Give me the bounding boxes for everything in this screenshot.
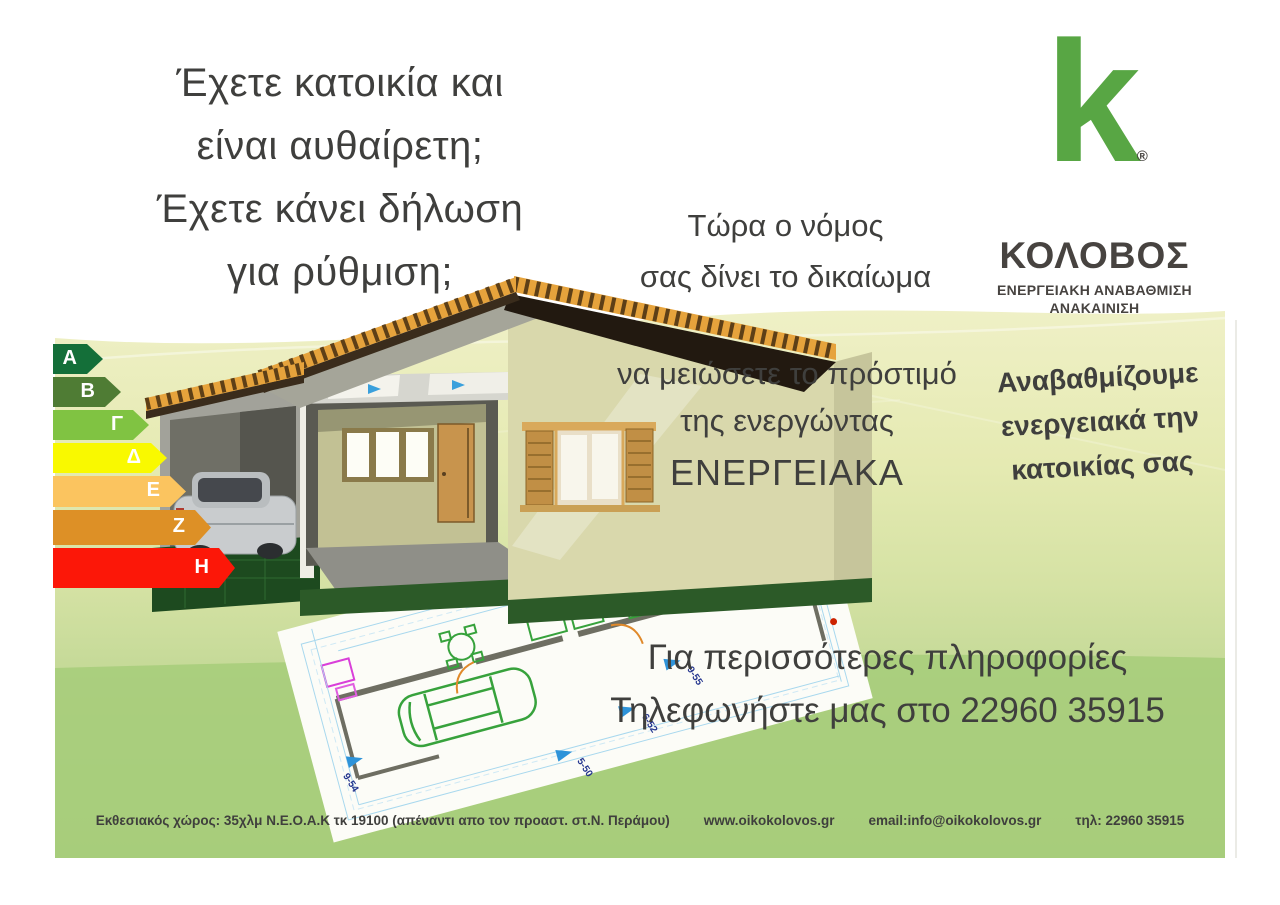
headline-line: για ρύθμιση; xyxy=(115,241,565,304)
footer-phone: τηλ: 22960 35915 xyxy=(1075,813,1184,828)
porch-window xyxy=(342,428,434,482)
company-name: ΚΟΛΟΒΟΣ xyxy=(963,235,1226,277)
energy-rating-arrow-Α: Α xyxy=(53,344,103,374)
energy-rating-letter: Η xyxy=(195,556,209,579)
company-tagline-line1: ΕΝΕΡΓΕΙΑΚΗ ΑΝΑΒΑΘΜΙΣΗ xyxy=(963,281,1226,299)
energy-rating-arrow-Γ: Γ xyxy=(53,410,149,440)
registered-trademark-icon: ® xyxy=(1137,148,1144,165)
energy-rating-arrow-Δ: Δ xyxy=(53,443,167,473)
energy-rating-arrow-Β: Β xyxy=(53,377,121,407)
benefit-line: της ενεργώντας xyxy=(606,397,968,444)
benefit-text: να μειώσετε το πρόστιμό της ενεργώντας Ε… xyxy=(606,350,968,496)
contact-info-text: Για περισσότερες πληροφορίες Τηλεφωνήστε… xyxy=(595,631,1180,737)
contact-line: Τηλεφωνήστε μας στο 22960 35915 xyxy=(595,684,1180,737)
upgrade-pitch-text: Αναβαθμίζουμε ενεργειακά την κατοικίας σ… xyxy=(969,349,1232,494)
energy-rating-letter: Δ xyxy=(127,446,141,469)
contact-line: Για περισσότερες πληροφορίες xyxy=(595,631,1180,684)
footer-website: www.oikokolovos.gr xyxy=(704,813,835,828)
headline-line: Έχετε κάνει δήλωση xyxy=(115,178,565,241)
footer-address: Εκθεσιακός χώρος: 35χλμ Ν.Ε.Ο.Α.Κ τκ 191… xyxy=(96,813,670,828)
law-intro-text: Τώρα ο νόμος σας δίνει το δικαίωμα xyxy=(628,200,943,302)
footer-bar: Εκθεσιακός χώρος: 35χλμ Ν.Ε.Ο.Α.Κ τκ 191… xyxy=(55,813,1225,828)
headline-text: Έχετε κατοικία και είναι αυθαίρετη; Έχετ… xyxy=(115,52,565,304)
logo-k-mark: k® xyxy=(963,28,1226,231)
headline-line: Έχετε κατοικία και xyxy=(115,52,565,115)
energy-rating-arrow-Ε: Ε xyxy=(53,476,186,507)
benefit-line: να μειώσετε το πρόστιμό xyxy=(606,350,968,397)
energy-rating-letter: Ε xyxy=(147,479,160,502)
headline-line: είναι αυθαίρετη; xyxy=(115,115,565,178)
footer-email: email:info@oikokolovos.gr xyxy=(868,813,1041,828)
energy-rating-arrow-Ζ: Ζ xyxy=(53,510,211,545)
law-intro-line: σας δίνει το δικαίωμα xyxy=(628,251,943,302)
energy-rating-letter: Γ xyxy=(111,413,123,436)
company-tagline: ΕΝΕΡΓΕΙΑΚΗ ΑΝΑΒΑΘΜΙΣΗ ΑΝΑΚΑΙΝΙΣΗ xyxy=(963,281,1226,317)
energy-rating-arrow-Η: Η xyxy=(53,548,235,588)
benefit-emphasis: ΕΝΕΡΓΕΙΑΚΑ xyxy=(606,449,968,496)
company-tagline-line2: ΑΝΑΚΑΙΝΙΣΗ xyxy=(963,299,1226,317)
company-logo-card: k® ΚΟΛΟΒΟΣ ΕΝΕΡΓΕΙΑΚΗ ΑΝΑΒΑΘΜΙΣΗ ΑΝΑΚΑΙΝ… xyxy=(963,14,1226,311)
energy-rating-letter: Α xyxy=(63,347,77,370)
energy-rating-letter: Β xyxy=(81,380,95,403)
law-intro-line: Τώρα ο νόμος xyxy=(628,200,943,251)
front-door xyxy=(438,424,474,522)
energy-rating-letter: Ζ xyxy=(173,515,185,538)
energy-rating-scale: ΑΒΓΔΕΖΗ xyxy=(53,344,235,591)
